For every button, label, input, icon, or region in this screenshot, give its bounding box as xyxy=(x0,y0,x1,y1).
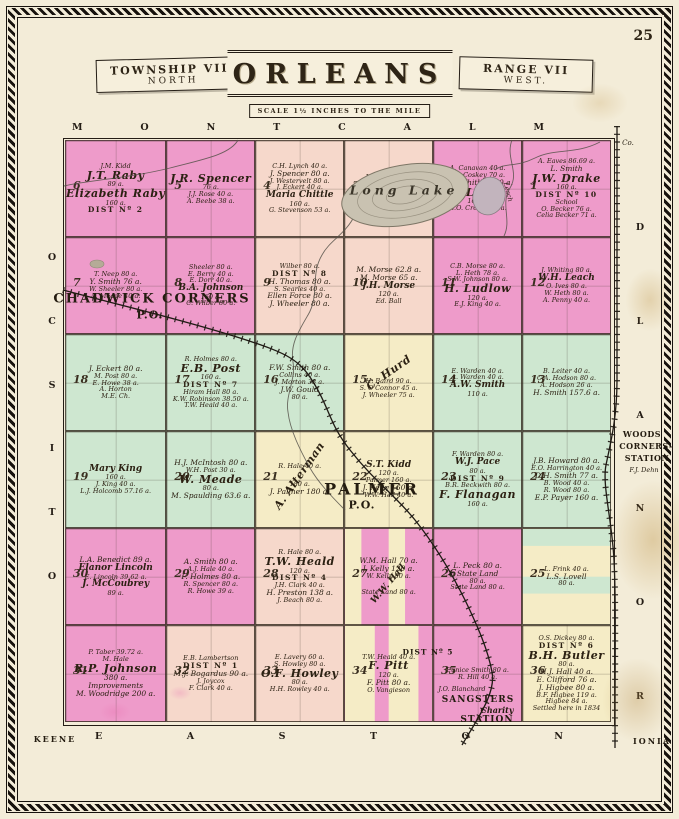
west-neighbor-otisco: OCSITO xyxy=(46,252,58,582)
otisco-letter: C xyxy=(48,316,56,327)
atlas-page: { "page": {"number": "25"}, "banner": { … xyxy=(0,0,679,819)
map-title: ORLEANS xyxy=(233,59,447,90)
montcalm-letter: M xyxy=(533,122,544,133)
easton-letter: T xyxy=(370,731,377,742)
montcalm-letter: O xyxy=(140,122,148,133)
easton-letter: S xyxy=(279,731,286,742)
montcalm-letter: N xyxy=(207,122,216,133)
corner-keene: KEENE xyxy=(34,734,77,744)
ronald-letter: D xyxy=(636,222,644,233)
place-label: STATION xyxy=(625,453,670,463)
easton-letter: E xyxy=(95,731,102,742)
montcalm-letter: T xyxy=(273,122,280,133)
scale-label: SCALE 1½ INCHES TO THE MILE xyxy=(249,104,431,118)
south-neighbor-easton: EASTON xyxy=(95,731,563,742)
corner-ionia: IONIA xyxy=(633,736,671,746)
ronald-letter: N xyxy=(636,503,645,514)
otisco-letter: I xyxy=(50,443,54,454)
north-neighbor-montcalm: MONTCALM xyxy=(72,122,544,133)
place-label: CORNERS- xyxy=(619,441,672,451)
title-banner: TOWNSHIP VIII NORTH ORLEANS RANGE VII WE… xyxy=(0,48,679,120)
ronald-letter: L xyxy=(637,316,644,327)
map-title-panel: ORLEANS xyxy=(227,50,452,97)
ronald-letter: A xyxy=(636,410,643,421)
montcalm-letter: A xyxy=(404,122,411,133)
otisco-letter: O xyxy=(48,571,56,582)
east-neighbor-ronald: DLANOR xyxy=(634,222,646,702)
easton-letter: A xyxy=(187,731,194,742)
montcalm-letter: L xyxy=(469,122,476,133)
corner-county: Co. xyxy=(622,139,634,147)
ronald-letter: O xyxy=(636,597,644,608)
montcalm-letter: C xyxy=(338,122,346,133)
township-boundary xyxy=(63,138,615,726)
easton-letter: O xyxy=(462,731,470,742)
otisco-letter: S xyxy=(49,380,56,391)
montcalm-letter: M xyxy=(72,122,83,133)
otisco-letter: O xyxy=(48,252,56,263)
otisco-letter: T xyxy=(48,507,55,518)
ronald-letter: R xyxy=(636,691,644,702)
range-ribbon: RANGE VII WEST. xyxy=(459,56,594,92)
page-number: 25 xyxy=(634,28,653,44)
easton-letter: N xyxy=(554,731,563,742)
